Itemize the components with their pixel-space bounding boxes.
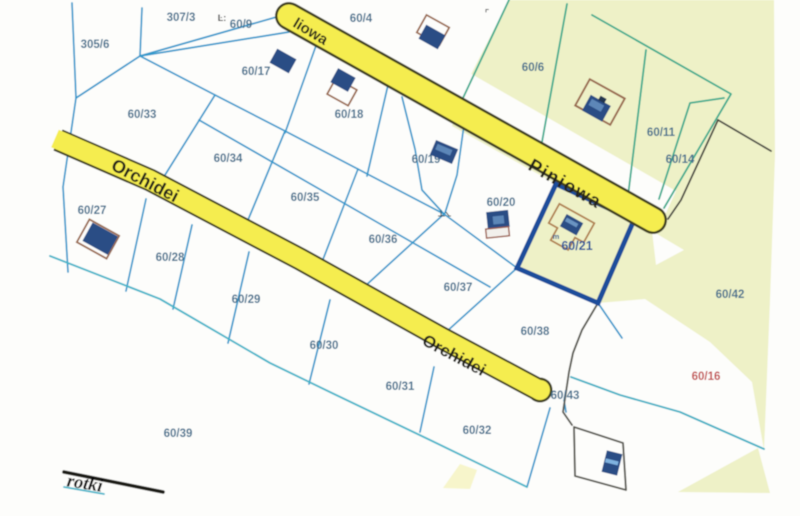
svg-text:60/27: 60/27 <box>78 205 107 217</box>
svg-text:60/20: 60/20 <box>487 197 516 209</box>
svg-text:60/32: 60/32 <box>463 425 492 437</box>
svg-text:60/37: 60/37 <box>444 282 473 294</box>
svg-text:60/6: 60/6 <box>522 62 544 74</box>
svg-text:305/6: 305/6 <box>81 39 110 51</box>
svg-text:60/33: 60/33 <box>128 109 157 121</box>
svg-text:Ŀ:: Ŀ: <box>218 13 227 23</box>
svg-text:60/18: 60/18 <box>335 109 364 121</box>
svg-text:60/29: 60/29 <box>232 294 261 306</box>
svg-text:m: m <box>553 232 560 241</box>
svg-text:60/17: 60/17 <box>242 66 271 78</box>
svg-text:60/36: 60/36 <box>369 234 398 246</box>
svg-text:60/34: 60/34 <box>214 153 243 165</box>
svg-text:60/14: 60/14 <box>666 154 695 166</box>
svg-text:60/38: 60/38 <box>521 326 550 338</box>
svg-text:60/9: 60/9 <box>230 19 252 31</box>
svg-text:⌜: ⌜ <box>485 8 489 18</box>
svg-text:60/4: 60/4 <box>350 13 373 25</box>
svg-text:60/35: 60/35 <box>291 192 320 204</box>
svg-text:60/11: 60/11 <box>647 127 676 139</box>
svg-text:60/28: 60/28 <box>156 252 185 264</box>
svg-text:60/30: 60/30 <box>310 340 339 352</box>
svg-text:307/3: 307/3 <box>167 12 196 24</box>
svg-text:60/16: 60/16 <box>692 371 721 383</box>
svg-text:60/21: 60/21 <box>561 239 592 253</box>
svg-text:60/31: 60/31 <box>386 381 415 393</box>
svg-text:60/39: 60/39 <box>164 428 193 440</box>
svg-text:60/43: 60/43 <box>551 390 580 402</box>
svg-text:60/42: 60/42 <box>716 289 745 301</box>
